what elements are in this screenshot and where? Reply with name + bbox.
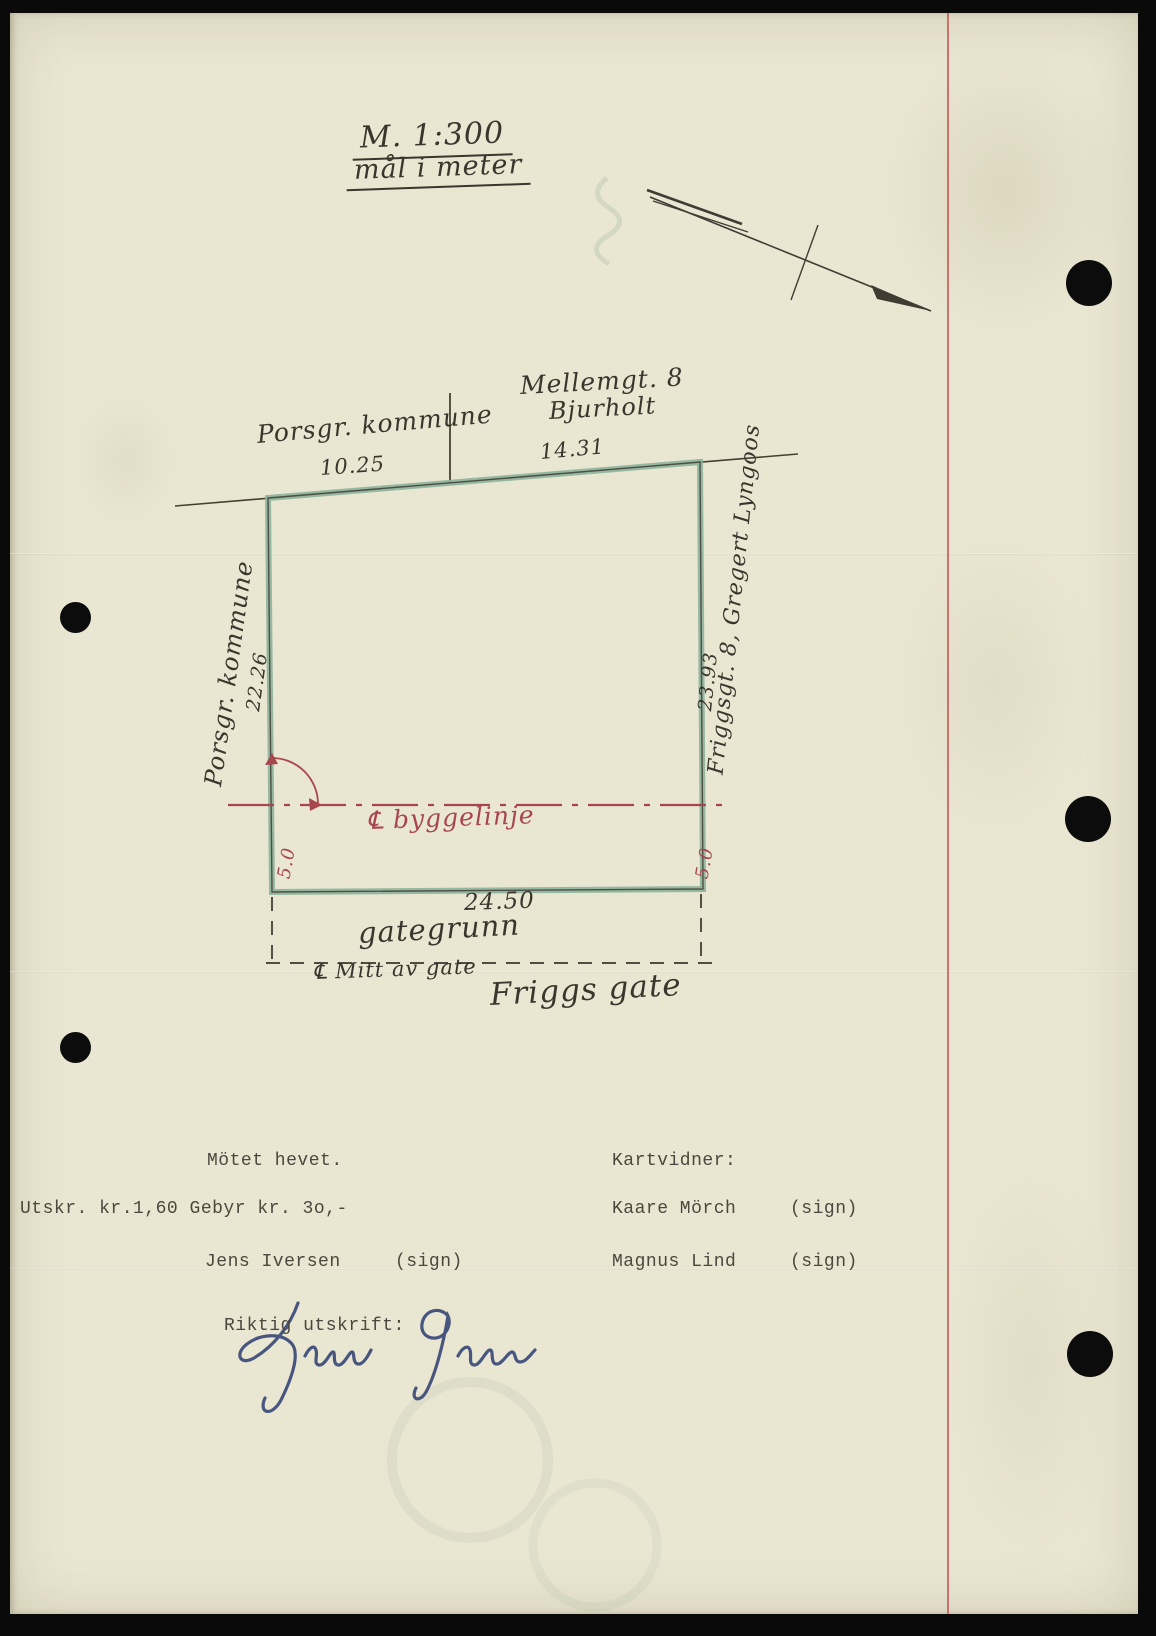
label-top-neighbor-name: Bjurholt [548, 391, 657, 425]
dimension-top-left: 10.25 [319, 451, 386, 479]
punch-hole [1065, 796, 1111, 842]
recorder-sign: (sign) [395, 1252, 463, 1272]
scale-unit: mål i meter [345, 149, 531, 191]
plot-map-drawing [0, 0, 1156, 1636]
witness2-sign: (sign) [790, 1252, 858, 1272]
punch-hole [1066, 260, 1112, 306]
label-building-line: ℄ byggelinje [366, 800, 534, 835]
scanned-survey-document: M. 1:300 mål i meter Porsgr. kommune 10.… [0, 0, 1156, 1636]
witness1-sign: (sign) [790, 1199, 858, 1219]
north-arrow [647, 190, 931, 311]
scale-unit-heading: mål i meter [345, 149, 531, 191]
recorder-name: Jens Iversen [205, 1252, 341, 1272]
minutes-meeting-closed: Mötet hevet. [207, 1151, 343, 1171]
punch-hole [60, 1032, 91, 1063]
certify-label: Riktig utskrift: [224, 1316, 405, 1336]
minutes-witnesses-heading: Kartvidner: [612, 1151, 736, 1171]
punch-hole [1067, 1331, 1113, 1377]
punch-hole [60, 602, 91, 633]
minutes-fee-line: Utskr. kr.1,60 Gebyr kr. 3o,- [20, 1199, 348, 1219]
witness1-name: Kaare Mörch [612, 1199, 736, 1219]
witness2-name: Magnus Lind [612, 1252, 736, 1272]
